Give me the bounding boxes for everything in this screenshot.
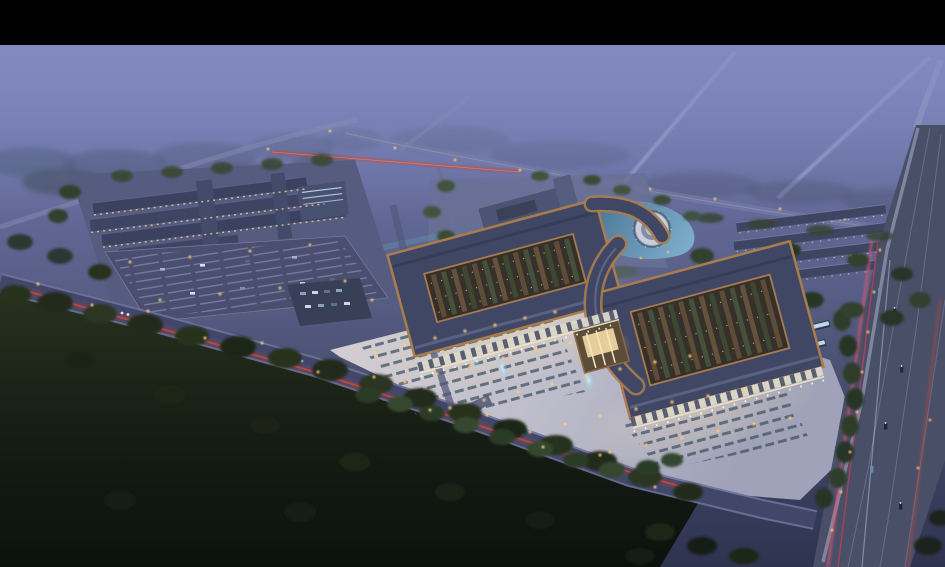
campus-side-parking [287, 278, 372, 326]
aerial-rendering [0, 0, 945, 567]
rendering-viewport [0, 0, 945, 567]
letterbox-top [0, 0, 945, 45]
